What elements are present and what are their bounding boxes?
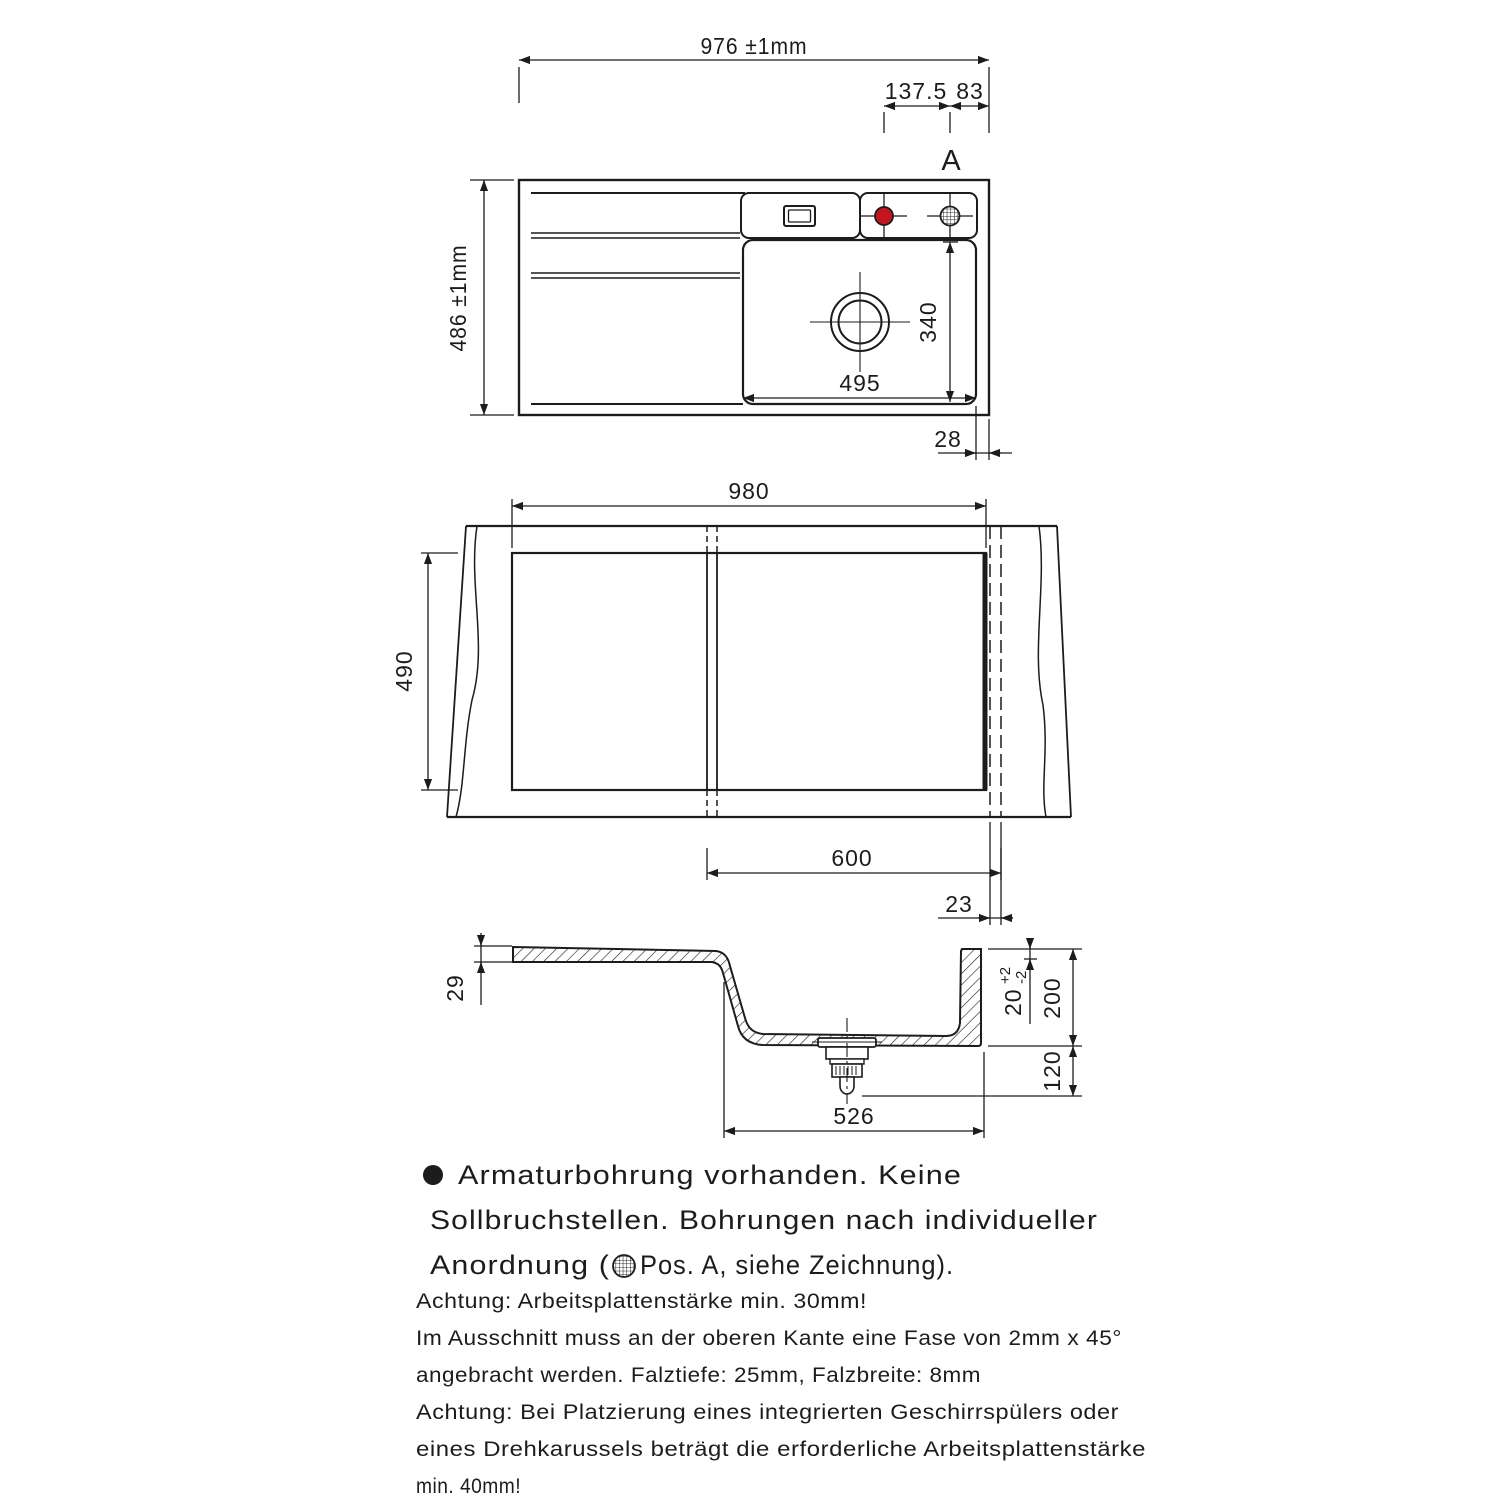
note-line-3-prefix: Anordnung ( bbox=[430, 1250, 610, 1280]
worktop-right-edge bbox=[1057, 526, 1071, 817]
dim-label-600: 600 bbox=[831, 845, 872, 871]
attention-line-2: Im Ausschnitt muss an der oberen Kante e… bbox=[416, 1327, 1122, 1350]
notes: Armaturbohrung vorhanden. Keine Sollbruc… bbox=[416, 1160, 1146, 1498]
drain-hole bbox=[810, 272, 910, 372]
bullet-icon bbox=[423, 1165, 443, 1185]
cutout-outline bbox=[512, 553, 986, 790]
dim-label-526: 526 bbox=[833, 1103, 874, 1129]
cabinet-side-lines bbox=[707, 526, 1001, 817]
dim-label-490: 490 bbox=[391, 650, 417, 691]
sink-technical-drawing: 976 ±1mm 137.5 83 A 486 ±1mm 340 bbox=[0, 0, 1500, 1500]
dim-label-340: 340 bbox=[915, 301, 941, 342]
dim-label-976: 976 ±1mm bbox=[701, 33, 808, 59]
dim-label-23: 23 bbox=[945, 891, 973, 917]
section-view: 29 20 +2 -2 200 120 bbox=[442, 933, 1082, 1138]
optional-hole-marker bbox=[941, 207, 960, 226]
dim-label-486: 486 ±1mm bbox=[445, 245, 471, 352]
dim-label-120: 120 bbox=[1039, 1050, 1065, 1091]
dim-label-495: 495 bbox=[839, 370, 880, 396]
attention-line-4: Achtung: Bei Platzierung eines integrier… bbox=[416, 1401, 1119, 1424]
top-view: 976 ±1mm 137.5 83 A 486 ±1mm 340 bbox=[445, 33, 1012, 460]
dim-cutout-height: 490 bbox=[391, 553, 458, 790]
note-line-2: Sollbruchstellen. Bohrungen nach individ… bbox=[430, 1205, 1098, 1235]
note-line-3-suffix: Pos. A, siehe Zeichnung). bbox=[640, 1250, 954, 1280]
dim-front-edge: 29 bbox=[442, 933, 513, 1005]
break-line-right bbox=[1038, 526, 1046, 817]
dim-overall-depth: 486 ±1mm bbox=[445, 180, 514, 415]
dim-bowl-width: 495 bbox=[743, 370, 976, 398]
attention-line-6: min. 40mm! bbox=[416, 1475, 521, 1498]
attention-line-5: eines Drehkarussels beträgt die erforder… bbox=[416, 1438, 1146, 1461]
overflow-window-inner bbox=[789, 210, 811, 222]
overflow-panel bbox=[741, 193, 860, 238]
dim-label-83: 83 bbox=[956, 78, 984, 104]
dim-cabinet-width: 600 bbox=[707, 845, 1001, 880]
drawing-canvas: 976 ±1mm 137.5 83 A 486 ±1mm 340 bbox=[0, 0, 1500, 1500]
faucet-hole-red bbox=[861, 194, 907, 239]
dim-label-28: 28 bbox=[934, 426, 962, 452]
sink-outline bbox=[519, 180, 989, 415]
attention-notes: Achtung: Arbeitsplattenstärke min. 30mm!… bbox=[416, 1290, 1146, 1498]
note-line-1: Armaturbohrung vorhanden. Keine bbox=[458, 1160, 962, 1190]
drain-fitting bbox=[812, 1018, 882, 1104]
crosshatch-hole-icon bbox=[613, 1255, 635, 1277]
dim-label-tol-plus: +2 bbox=[997, 967, 1014, 984]
break-line-left bbox=[456, 526, 478, 817]
cutout-view: 980 490 600 23 bbox=[391, 478, 1071, 925]
dim-label-200: 200 bbox=[1039, 977, 1065, 1018]
ceramic-cross-section bbox=[513, 947, 981, 1046]
dim-cutout-width: 980 bbox=[512, 478, 986, 548]
dim-label-29: 29 bbox=[442, 974, 468, 1002]
attention-line-3: angebracht werden. Falztiefe: 25mm, Falz… bbox=[416, 1364, 981, 1387]
position-label-A: A bbox=[941, 145, 961, 177]
dim-label-20: 20 bbox=[1000, 988, 1026, 1016]
dim-rim-height: 20 +2 -2 bbox=[997, 939, 1037, 1024]
dim-label-980: 980 bbox=[728, 478, 769, 504]
dim-hole-positions: 137.5 83 A bbox=[884, 78, 989, 177]
dim-bowl-depth: 340 bbox=[915, 242, 958, 402]
optional-hole-A bbox=[927, 194, 973, 239]
dim-label-137-5: 137.5 bbox=[885, 78, 948, 104]
drainer-grooves bbox=[531, 233, 740, 278]
dim-label-tol-minus: -2 bbox=[1013, 971, 1030, 984]
faucet-hole-marker bbox=[875, 207, 893, 225]
attention-line-1: Achtung: Arbeitsplattenstärke min. 30mm! bbox=[416, 1290, 867, 1313]
